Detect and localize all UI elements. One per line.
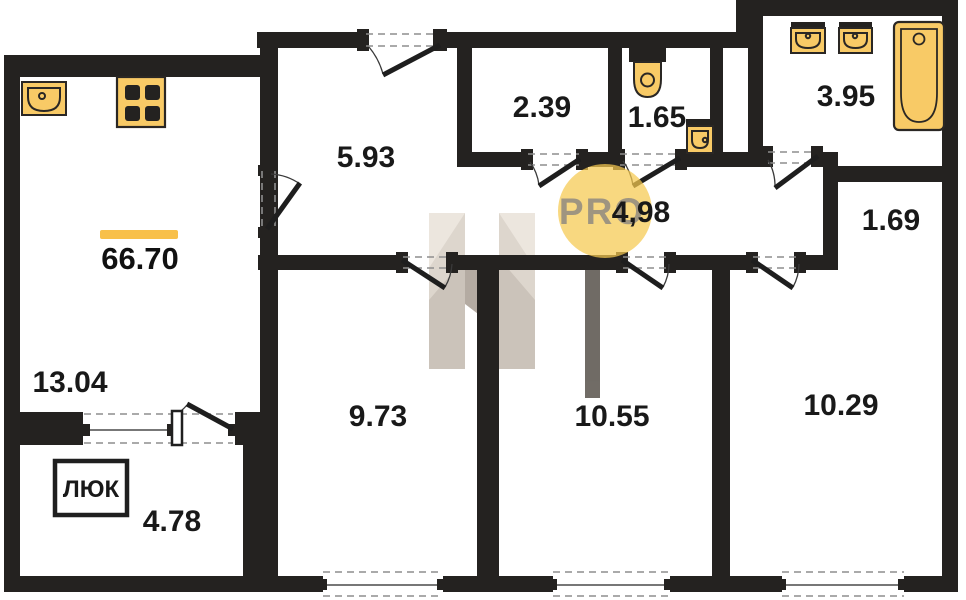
toilet bbox=[629, 48, 666, 97]
bathroom-sink-1 bbox=[791, 22, 825, 53]
room-label-kitchen-living: 13.04 bbox=[32, 366, 107, 399]
room-label-hallway: 5.93 bbox=[337, 141, 395, 174]
total-area-accent-bar bbox=[100, 230, 178, 239]
kitchen-sink bbox=[22, 82, 66, 115]
total-area-label: 66.70 bbox=[101, 241, 179, 276]
balcony-door-frame bbox=[172, 411, 182, 445]
room-right-door-leaf bbox=[752, 260, 793, 288]
room-label-room-left: 9.73 bbox=[349, 400, 407, 433]
room-label-wardrobe-nook: 1.69 bbox=[862, 204, 920, 237]
floor-plan: ЛЮК PRO 66.70 13.04 4.78 5.93 2.39 1.65 … bbox=[0, 0, 966, 600]
room-label-room-right: 10.29 bbox=[803, 389, 878, 422]
room-label-balcony: 4.78 bbox=[143, 505, 201, 538]
balcony-door-leaf bbox=[187, 404, 233, 429]
room-middle-door-leaf bbox=[622, 260, 663, 288]
wc-sink bbox=[686, 119, 714, 153]
room-label-wc: 1.65 bbox=[628, 101, 686, 134]
room-label-bathroom: 3.95 bbox=[817, 80, 875, 113]
room-label-room-middle: 10.55 bbox=[574, 400, 649, 433]
stove bbox=[117, 77, 165, 127]
entrance-door-leaf bbox=[383, 45, 440, 75]
bathroom-sink-2 bbox=[839, 22, 872, 53]
bathtub bbox=[894, 22, 944, 130]
entrance-door-arc bbox=[369, 47, 383, 74]
room-label-storage: 2.39 bbox=[513, 91, 571, 124]
hatch-label: ЛЮК bbox=[63, 476, 120, 503]
room-label-corridor: 4,98 bbox=[612, 196, 670, 229]
floor-plan-page: ЛЮК PRO 66.70 13.04 4.78 5.93 2.39 1.65 … bbox=[0, 0, 966, 600]
bathroom-door-leaf bbox=[775, 156, 818, 188]
